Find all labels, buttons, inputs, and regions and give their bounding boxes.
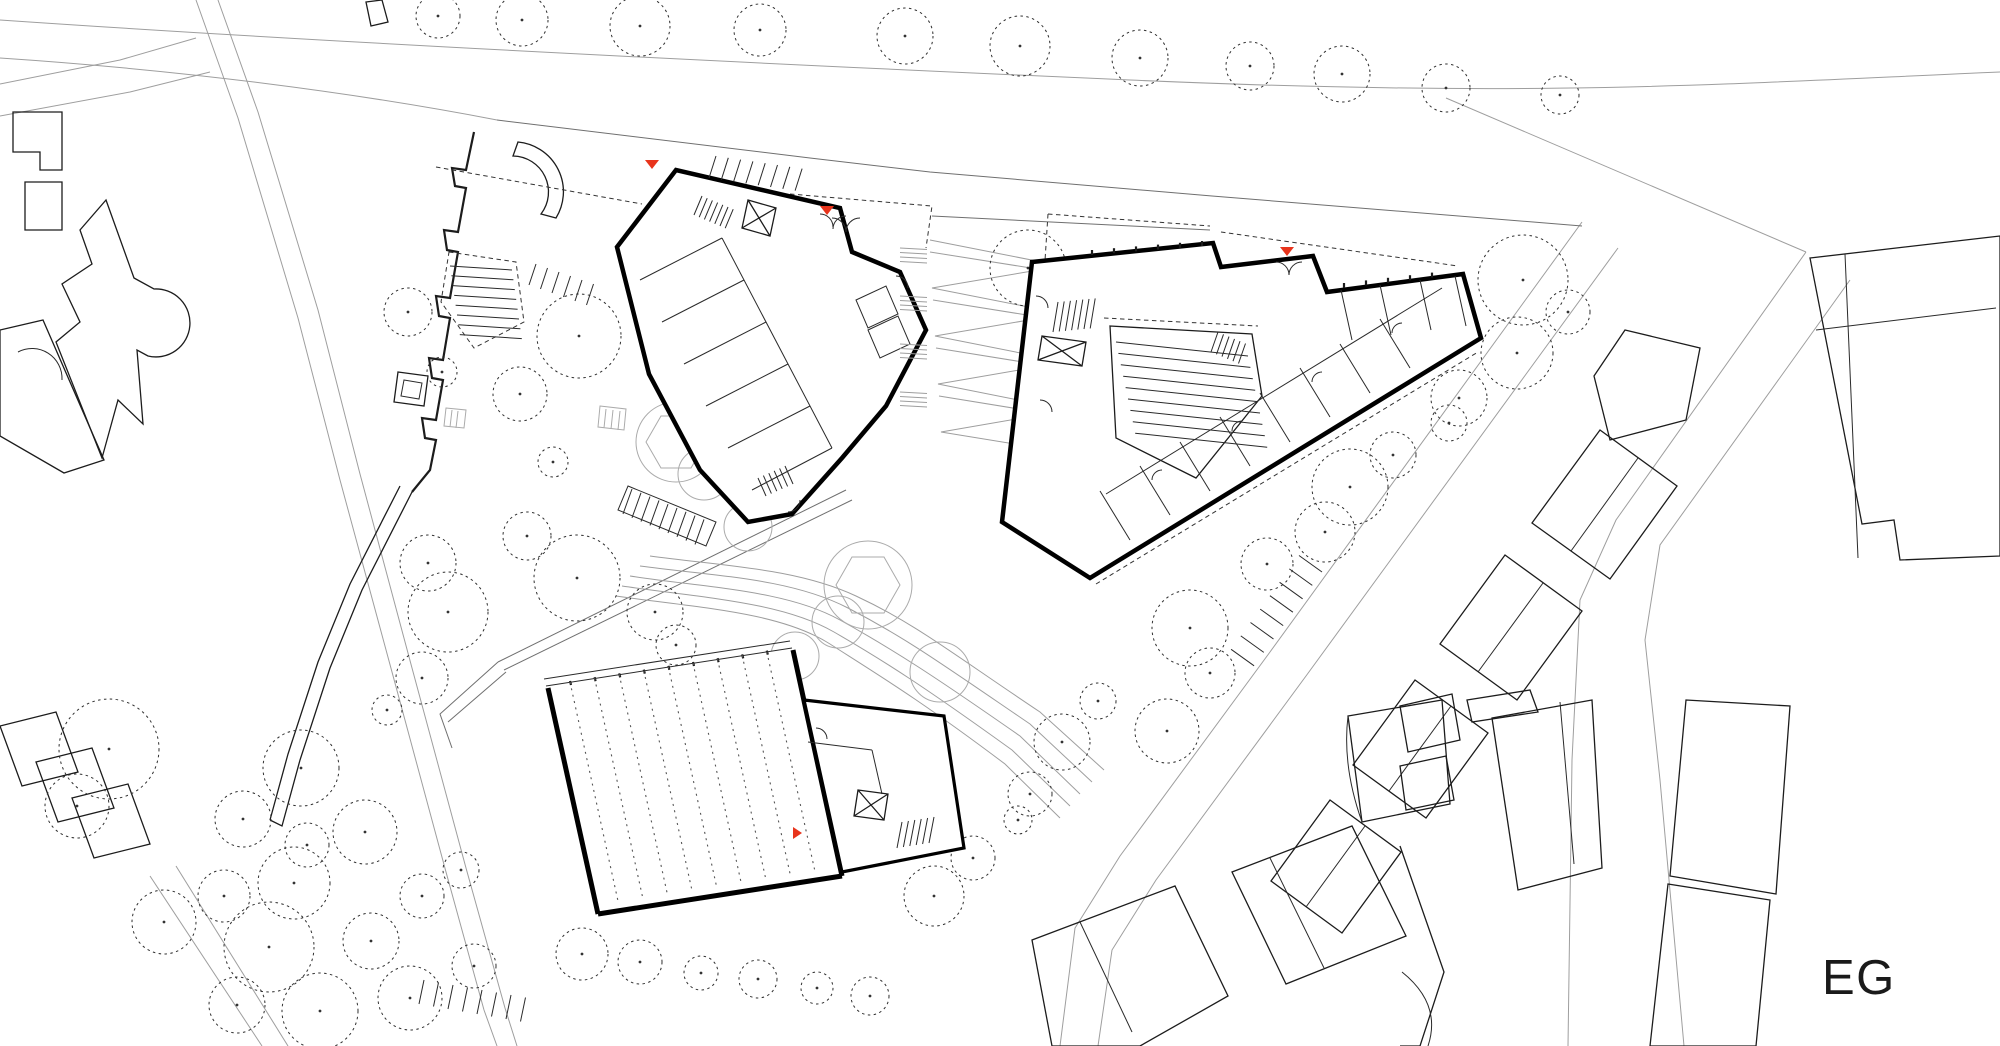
tree-center [293, 882, 296, 885]
road-left-edge-1 [196, 0, 497, 1046]
context-row-4-line [1306, 826, 1365, 907]
tree-center [1341, 73, 1344, 76]
parking-strokes-top-1 [783, 167, 790, 189]
tree-center [473, 965, 476, 968]
context-br-3 [1670, 700, 1790, 894]
park-path-2 [176, 866, 288, 1046]
parking-strokes-top-1 [709, 156, 716, 178]
tree-center [1249, 65, 1252, 68]
tree-center [460, 869, 463, 872]
context-br-7-arc [1402, 972, 1432, 1046]
courtyard-a-steps [450, 266, 512, 270]
zigzag-comb-4 [900, 406, 927, 408]
parking-strokes-bottom [521, 998, 526, 1022]
tree-center [268, 946, 271, 949]
parking-strokes-street [1251, 623, 1274, 640]
zigzag-comb-4 [900, 401, 927, 403]
tree-center [421, 895, 424, 898]
walkway-1b [504, 500, 852, 670]
road-top-edge-2 [0, 58, 497, 120]
tree-center [1097, 700, 1100, 703]
plaza-ramp-hatch [623, 489, 632, 514]
courtyard-a-steps [458, 325, 520, 329]
parking-strokes-top-1 [734, 160, 741, 182]
tree-center [757, 978, 760, 981]
context-block-ne-line-1 [1845, 254, 1858, 558]
site-plan-svg [0, 0, 2000, 1046]
wall-lower-2 [270, 486, 400, 820]
canopy-b-dashed-1 [1048, 214, 1210, 226]
plaza-ramp-hatch [659, 504, 668, 529]
wall-gate-inner [401, 380, 422, 399]
tree-center [1166, 730, 1169, 733]
parking-strokes-top-1 [746, 161, 753, 183]
tree-center [236, 1004, 239, 1007]
tree-center [675, 644, 678, 647]
tree [496, 0, 548, 46]
canopy-hex-2 [836, 557, 900, 613]
parking-strokes-street [1260, 609, 1283, 626]
parking-strokes-street [1241, 636, 1264, 653]
zigzag-comb-1 [900, 248, 927, 250]
tree-center [1516, 352, 1519, 355]
building-a-outline [617, 170, 926, 522]
parking-strokes-top-1 [795, 169, 802, 191]
courtyard-a-steps [457, 315, 519, 319]
zigzag-comb-4 [900, 397, 927, 399]
plaza-ramp-hatch [632, 493, 641, 518]
tree-center [1029, 793, 1032, 796]
tree-center [972, 857, 975, 860]
tree-center [1392, 454, 1395, 457]
tree-center [386, 709, 389, 712]
walkway-2b [448, 672, 506, 722]
church-wing [0, 320, 104, 473]
tree-center [1458, 397, 1461, 400]
notched-wall [412, 132, 474, 492]
canopy-tree [824, 541, 912, 629]
courtyard-a-steps [453, 286, 515, 290]
parking-strokes-street [1280, 582, 1303, 599]
zigzag-comb-4 [900, 392, 927, 394]
context-bc-1-line [1080, 922, 1132, 1032]
street-east-1 [1568, 252, 1806, 1046]
tree-center [242, 818, 245, 821]
parking-strokes-top-2 [529, 264, 536, 285]
tree-center [816, 987, 819, 990]
parking-strokes-top-1 [721, 158, 728, 180]
parking-strokes-top-2 [552, 272, 559, 293]
tree-center [441, 371, 444, 374]
tree-center [108, 748, 111, 751]
tree-center [639, 25, 642, 28]
zigzag-comb-1 [900, 257, 927, 259]
tree-center [1189, 627, 1192, 630]
canopy-a-dashed [436, 167, 642, 204]
courtyard-a-steps [454, 295, 516, 299]
tree [610, 0, 670, 56]
parking-strokes-bottom [419, 980, 424, 1004]
parking-strokes-street [1270, 596, 1293, 613]
parking-strokes-top-1 [758, 163, 765, 185]
tree-center [407, 311, 410, 314]
tree-center [654, 611, 657, 614]
tree-center [370, 940, 373, 943]
context-row-1-line [1571, 458, 1638, 551]
tree-center [76, 805, 79, 808]
floor-plan-page: EG [0, 0, 2000, 1046]
context-br-4 [1650, 884, 1770, 1046]
row-house-3 [72, 784, 150, 858]
furniture-bench-1 [598, 406, 626, 430]
tree-center [1522, 279, 1525, 282]
canopy-tree [812, 596, 864, 648]
parking-strokes-top-2 [564, 276, 571, 297]
tree-center [409, 997, 412, 1000]
tree-center [437, 15, 440, 18]
tree-center [364, 831, 367, 834]
context-bc-2 [1232, 826, 1406, 984]
row-house-2 [36, 748, 114, 822]
context-row-3-line [1389, 706, 1451, 791]
courtyard-a-steps [456, 305, 518, 309]
plaza-ramp-hatch [668, 508, 677, 533]
parking-strokes-top-2 [575, 280, 582, 301]
parking-strokes-bottom [448, 985, 453, 1009]
tree-center [869, 995, 872, 998]
wall-crescent [513, 142, 563, 218]
tree-center [759, 29, 762, 32]
parking-strokes-bottom [492, 993, 497, 1017]
tree-center [1559, 94, 1562, 97]
parking-strokes-top-2 [587, 284, 594, 305]
zigzag-comb-1 [900, 262, 927, 264]
tree-center [447, 611, 450, 614]
tree-center [306, 844, 309, 847]
tree-center [581, 953, 584, 956]
plaza-ramp-hatch [695, 519, 704, 544]
tree-center [1445, 87, 1448, 90]
entrance-marker-a [645, 160, 659, 169]
tree [282, 973, 358, 1046]
tree-center [1139, 57, 1142, 60]
tree-center [578, 335, 581, 338]
road-fork-2 [0, 72, 210, 116]
context-row-2-line [1478, 583, 1543, 672]
tree-center [552, 461, 555, 464]
tree-center [526, 535, 529, 538]
context-top-tiny [366, 0, 388, 26]
park-path-1 [150, 876, 262, 1046]
parking-strokes-top-1 [771, 165, 778, 187]
road-fork-1 [0, 38, 196, 84]
tree-center [1017, 819, 1020, 822]
parking-strokes-bottom [434, 983, 439, 1007]
church-main [56, 200, 190, 458]
road-left-edge-2 [218, 0, 517, 1046]
parking-strokes-top-2 [541, 268, 548, 289]
plaza-ramp-hatch [686, 516, 695, 541]
wall-lower-1 [270, 492, 412, 826]
church-arc [18, 349, 62, 380]
canopy-tree [910, 642, 970, 702]
street-east-2 [1645, 280, 1850, 1046]
tree-center [223, 895, 226, 898]
tree [416, 0, 460, 38]
tree-center [519, 393, 522, 396]
plaza-ramp-hatch [677, 512, 686, 537]
zigzag-comb-1 [900, 253, 927, 255]
tree-center [1019, 45, 1022, 48]
walkway-2a [440, 662, 498, 748]
street-connector [1446, 98, 1806, 252]
tree-center [1349, 486, 1352, 489]
context-br-2 [1492, 700, 1602, 890]
tree-center [300, 767, 303, 770]
tree-center [427, 562, 430, 565]
floor-level-label: EG [1822, 950, 1896, 1006]
tree-center [700, 972, 703, 975]
church-annex-2 [25, 182, 62, 230]
plaza-ramp-hatch [650, 500, 659, 525]
tree-center [421, 677, 424, 680]
context-bc-2-line [1270, 858, 1324, 968]
entrance-marker-b [1280, 247, 1294, 256]
parking-strokes-street [1299, 556, 1322, 573]
courtyard-a-steps [460, 335, 522, 339]
tree-center [319, 1010, 322, 1013]
context-bc-1 [1032, 886, 1228, 1046]
parking-strokes-street [1231, 649, 1254, 666]
tree-center [1567, 311, 1570, 314]
tree-center [1266, 563, 1269, 566]
tree-center [933, 895, 936, 898]
furniture-bench-2 [444, 408, 466, 428]
tree-center [639, 961, 642, 964]
tree-center [1061, 741, 1064, 744]
wall-gate-outer [394, 372, 428, 406]
tree-center [1209, 672, 1212, 675]
tree-center [1448, 422, 1451, 425]
parking-strokes-bottom [463, 988, 468, 1012]
road-top-edge-1 [0, 20, 2000, 89]
context-br-6 [1400, 756, 1454, 810]
church-annex-1 [13, 112, 62, 170]
context-br-1 [1467, 690, 1538, 722]
context-block-ne [1810, 236, 2000, 560]
context-block-ne-line-2 [1816, 308, 1996, 330]
tree-center [163, 921, 166, 924]
context-br-7 [1400, 846, 1444, 1046]
tree-center [521, 19, 524, 22]
parking-strokes-street [1289, 569, 1312, 586]
parking-strokes-bottom [506, 995, 511, 1019]
tree-center [904, 35, 907, 38]
tree-center [576, 577, 579, 580]
tree-center [1324, 531, 1327, 534]
courtyard-a-steps [451, 276, 513, 280]
plaza-ramp-hatch [641, 497, 650, 522]
